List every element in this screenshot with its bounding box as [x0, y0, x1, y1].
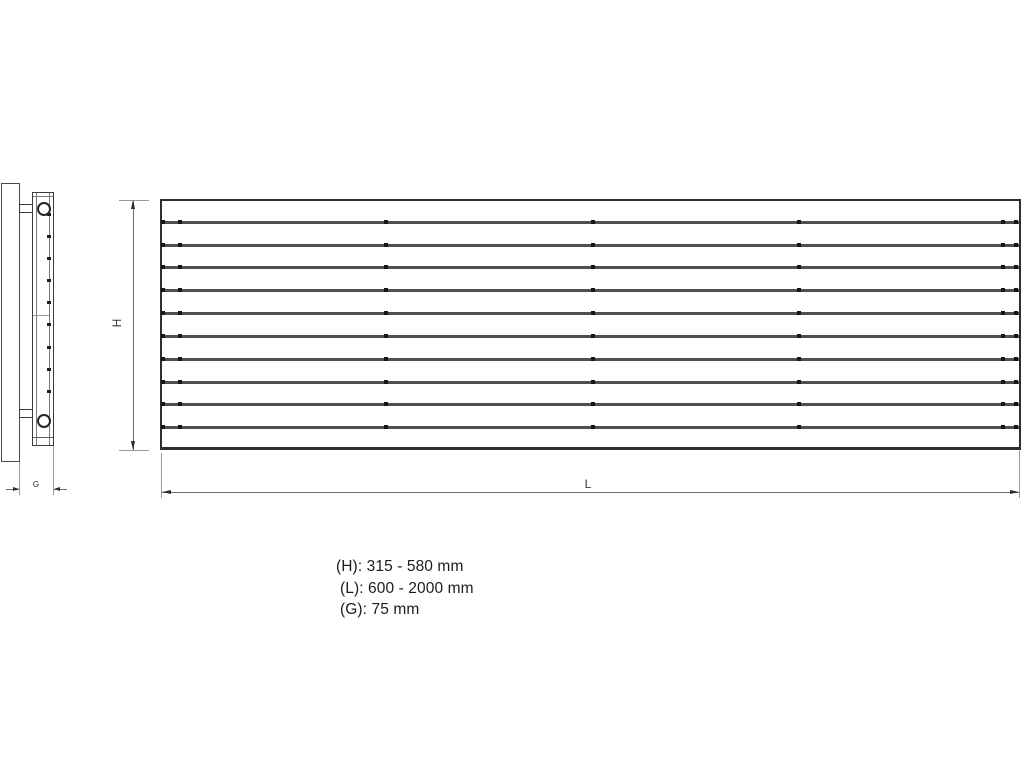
- g-arrow-left-icon: [54, 487, 60, 491]
- spec-list: (H): 315 - 580 mm (L): 600 - 2000 mm (G)…: [336, 556, 556, 621]
- weld-dot: [178, 243, 182, 247]
- g-dimension-label: G: [26, 480, 46, 489]
- weld-dot: [384, 243, 388, 247]
- h-dimension-line: [133, 201, 134, 450]
- weld-dot: [797, 380, 801, 384]
- g-arrow-right-icon: [13, 487, 19, 491]
- side-slat-mark: [47, 368, 51, 371]
- weld-dot: [178, 380, 182, 384]
- weld-dot: [161, 265, 165, 269]
- g-extension-line-left: [19, 462, 20, 495]
- side-slat-mark: [47, 257, 51, 260]
- l-arrow-right-icon: [1010, 490, 1019, 494]
- weld-dot: [1001, 357, 1005, 361]
- l-dimension-line: [162, 492, 1019, 493]
- weld-dot: [178, 425, 182, 429]
- weld-dot: [161, 425, 165, 429]
- spec-height: (H): 315 - 580 mm: [336, 556, 556, 578]
- radiator-top-cap-line: [33, 196, 53, 197]
- radiator-mid-line: [33, 315, 49, 316]
- radiator-back-face-line: [36, 193, 37, 445]
- weld-dot: [1014, 265, 1018, 269]
- radiator-front-face-line: [49, 193, 50, 445]
- wall-bracket-top: [19, 204, 33, 213]
- weld-dot: [1014, 334, 1018, 338]
- weld-dot: [591, 357, 595, 361]
- l-arrow-left-icon: [162, 490, 171, 494]
- weld-dot: [1001, 265, 1005, 269]
- radiator-bottom-cap-line: [33, 437, 53, 438]
- weld-dot: [1001, 311, 1005, 315]
- side-slat-mark: [47, 346, 51, 349]
- weld-dot: [1014, 243, 1018, 247]
- weld-dot: [1001, 402, 1005, 406]
- weld-dot: [384, 311, 388, 315]
- weld-dot: [161, 402, 165, 406]
- spec-depth: (G): 75 mm: [340, 599, 556, 621]
- weld-dot: [1001, 220, 1005, 224]
- weld-dot: [1014, 288, 1018, 292]
- h-extension-line-bottom: [119, 450, 149, 451]
- spec-length: (L): 600 - 2000 mm: [340, 578, 556, 600]
- weld-dot: [797, 357, 801, 361]
- weld-dot: [591, 380, 595, 384]
- side-slat-mark: [47, 301, 51, 304]
- weld-dot: [384, 220, 388, 224]
- weld-dot: [384, 402, 388, 406]
- weld-dot: [591, 402, 595, 406]
- weld-dot: [1014, 311, 1018, 315]
- weld-dot: [591, 311, 595, 315]
- weld-dot: [1014, 357, 1018, 361]
- weld-dot: [1001, 243, 1005, 247]
- weld-dot: [797, 425, 801, 429]
- weld-dot: [1014, 220, 1018, 224]
- weld-dot: [1014, 425, 1018, 429]
- weld-dot: [384, 288, 388, 292]
- weld-dot: [797, 334, 801, 338]
- weld-dot: [1001, 334, 1005, 338]
- weld-dot: [161, 357, 165, 361]
- weld-dot: [1014, 380, 1018, 384]
- weld-dot: [1001, 425, 1005, 429]
- side-slat-mark: [47, 279, 51, 282]
- weld-dot: [161, 220, 165, 224]
- pipe-connection-bottom: [37, 414, 51, 428]
- weld-dot: [591, 288, 595, 292]
- weld-dot: [161, 334, 165, 338]
- l-dimension-label: L: [578, 478, 598, 491]
- wall-bracket-bottom: [19, 409, 33, 418]
- weld-dot: [178, 220, 182, 224]
- weld-dot: [161, 311, 165, 315]
- weld-dot: [178, 402, 182, 406]
- weld-dot: [591, 334, 595, 338]
- weld-dot: [591, 220, 595, 224]
- weld-dot: [178, 265, 182, 269]
- weld-dot: [797, 220, 801, 224]
- h-arrow-up-icon: [131, 200, 135, 209]
- weld-dot: [797, 265, 801, 269]
- l-extension-line-right: [1019, 451, 1020, 498]
- weld-dot: [1001, 380, 1005, 384]
- weld-dot: [178, 357, 182, 361]
- weld-dot: [178, 334, 182, 338]
- h-dimension-label: H: [111, 315, 123, 331]
- weld-dot: [1001, 288, 1005, 292]
- radiator-front-panel: [160, 199, 1021, 450]
- pipe-connection-top: [37, 202, 51, 216]
- weld-dot: [591, 265, 595, 269]
- side-slat-mark: [47, 390, 51, 393]
- weld-dot: [161, 288, 165, 292]
- side-slat-mark: [47, 323, 51, 326]
- weld-dot: [1014, 402, 1018, 406]
- weld-dot: [384, 357, 388, 361]
- weld-dot: [178, 311, 182, 315]
- weld-dot: [797, 243, 801, 247]
- weld-dot: [797, 402, 801, 406]
- weld-dot: [178, 288, 182, 292]
- weld-dot: [161, 243, 165, 247]
- weld-dot: [384, 334, 388, 338]
- h-arrow-down-icon: [131, 441, 135, 450]
- weld-dot: [591, 425, 595, 429]
- weld-dot: [384, 265, 388, 269]
- weld-dot: [591, 243, 595, 247]
- weld-dot: [384, 380, 388, 384]
- weld-dot: [161, 380, 165, 384]
- radiator-technical-drawing: G H L (H): 315 - 580 mm (L): 600 - 2000 …: [0, 0, 1024, 768]
- side-slat-mark: [47, 235, 51, 238]
- weld-dot: [797, 288, 801, 292]
- weld-dot: [384, 425, 388, 429]
- wall-section: [1, 183, 20, 462]
- weld-dot: [797, 311, 801, 315]
